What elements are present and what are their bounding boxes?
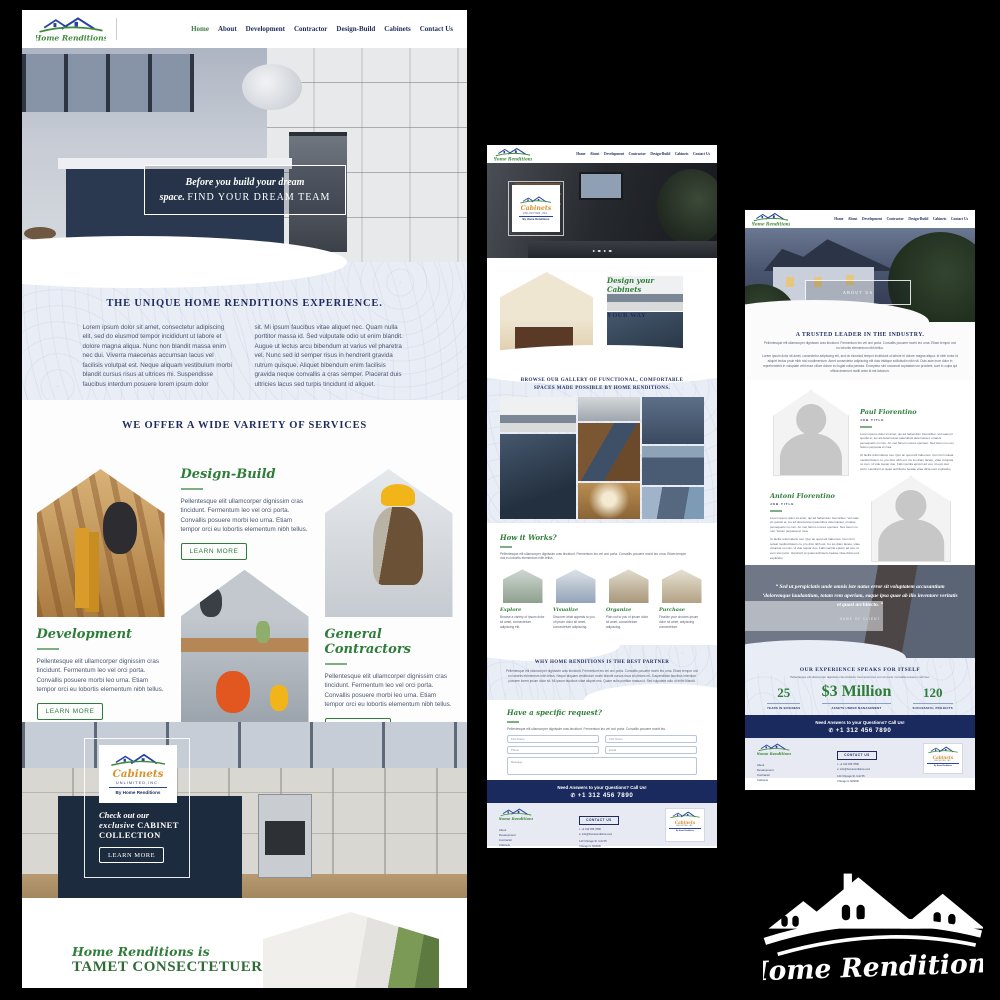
phone-icon: ✆: [829, 728, 834, 734]
nav-item-contractor[interactable]: Contractor: [629, 152, 646, 156]
paul-avatar-placeholder: [773, 390, 849, 476]
gallery-photo[interactable]: [500, 397, 576, 432]
learn-more-button[interactable]: LEARN MORE: [99, 847, 164, 863]
gallery-title: BROWSE OUR GALLERY OF FUNCTIONAL, COMFOR…: [487, 365, 717, 392]
site-footer: About Development Contractor Cabinets CO…: [487, 803, 717, 846]
team-member-paragraph: Ut facilis reformidans mei. Quo an quod …: [860, 453, 956, 472]
cabinets-roof-icon: [519, 196, 552, 204]
nav-item-home[interactable]: Home: [191, 25, 209, 33]
testimonial-quote: “ Sed ut perspiciatis unde omnis iste na…: [762, 583, 958, 610]
cabinets-roof-icon: [927, 746, 959, 754]
site-header: Home About Development Contractor Design…: [487, 145, 717, 163]
cabinets-roof-icon: [109, 753, 167, 767]
hero-line2-italic: space.: [160, 192, 185, 203]
how-intro: Pellentesque elit ullamcorper dignissim …: [500, 552, 690, 562]
team-member-job-title: JOB TITLE: [860, 418, 956, 422]
general-contractors-photo: [325, 469, 453, 617]
cabinets-unlimited-logo: Cabinets UNLIMITED,INC. By Home Renditio…: [109, 753, 167, 795]
footer-link-cabinets[interactable]: Cabinets: [499, 843, 533, 848]
stat-value: $3 Million: [822, 683, 892, 701]
hero-caption: Before you build your dream space. FIND …: [144, 165, 346, 215]
stat-years: 25 YEARS IN BUSINESS: [767, 685, 800, 710]
email-input[interactable]: [605, 746, 697, 754]
site-header: Home About Development Contractor Design…: [22, 10, 467, 48]
service-text: Pellentesque elit ullamcorper dignissim …: [181, 497, 309, 535]
visualize-photo: [556, 569, 596, 603]
message-input[interactable]: [507, 757, 697, 775]
stat-assets: $3 Million ASSETS UNDER MANAGEMENT: [822, 683, 892, 710]
dark-kitchen-hero-photo: Cabinets UNLIMITED,INC. By Home Renditio…: [487, 163, 717, 258]
cabinets-unlimited-text: UNLIMITED,INC.: [519, 213, 552, 216]
design-build-photo: [181, 570, 309, 726]
service-name: Design-Build: [181, 467, 309, 482]
nav-item-design-build[interactable]: Design-Build: [908, 217, 928, 221]
call-us-text: Need Answers to your Questions? Call Us!: [745, 720, 975, 725]
banner-line2-caps: CABINET: [137, 820, 179, 830]
banner-line3: COLLECTION: [99, 830, 219, 840]
gallery-photo[interactable]: [642, 397, 704, 444]
purchase-photo: [662, 569, 702, 603]
team-member-paragraph: Lorem ipsum dolor sit amet, qui ad haben…: [770, 516, 862, 535]
carousel-dot[interactable]: [593, 250, 595, 252]
cabinets-script-text: Cabinets: [519, 205, 552, 212]
home-renditions-watermark-logo: [763, 858, 983, 990]
why-text: Pellentesque elit ullamcorper dignissim …: [504, 669, 700, 684]
team-member-paragraph: Ut facilis reformidans mei. Quo an quod …: [770, 537, 862, 560]
service-name: Development: [37, 627, 165, 642]
testimonial-client-name: NAME OF CLIENT: [745, 617, 975, 621]
cabinets-logo-card: Cabinets UNLIMITED,INC. By Home Renditio…: [99, 745, 177, 803]
services-title: WE OFFER A WIDE VARIETY OF SERVICES: [22, 400, 467, 431]
step-text: Plan out to you of ipsum dolor sit amet,…: [606, 615, 651, 630]
homepage-mockup: Home About Development Contractor Design…: [22, 10, 467, 988]
antoni-avatar-placeholder: [871, 476, 951, 562]
nav-item-home[interactable]: Home: [576, 152, 585, 156]
footer-address-1: 123 Chicago St. Unit 55: [837, 775, 877, 778]
call-us-bar: Need Answers to your Questions? Call Us!…: [487, 780, 717, 803]
gallery-photo[interactable]: [642, 446, 704, 485]
organize-photo: [609, 569, 649, 603]
trusted-paragraph-1: Pellentesque elit ullamcorper dignissim …: [762, 341, 958, 351]
team-section: Paul Fiorentino JOB TITLE Lorem ipsum do…: [745, 380, 975, 565]
hero-line2-caps: FIND YOUR DREAM TEAM: [187, 192, 330, 203]
carousel-dots: [593, 250, 612, 252]
explore-photo: [503, 569, 543, 603]
stat-label: YEARS IN BUSINESS: [767, 703, 800, 710]
cabinets-script-text: Cabinets: [109, 769, 167, 781]
bottom-teaser-section: Home Renditions is TAMET CONSECTETUER: [22, 898, 467, 988]
step-name: Visualize: [553, 607, 598, 613]
why-best-partner-section: WHY HOME RENDITIONS IS THE BEST PARTNER …: [487, 645, 717, 700]
nav-item-development[interactable]: Development: [862, 217, 882, 221]
home-renditions-logo[interactable]: [752, 212, 790, 227]
nav-item-contractor[interactable]: Contractor: [294, 25, 327, 33]
nav-item-design-build[interactable]: Design-Build: [336, 25, 375, 33]
team-member-paragraph: Lorem ipsum dolor sit amet, qui ad haben…: [860, 432, 956, 451]
gallery-photo[interactable]: [578, 423, 640, 481]
hero-line1: Before you build your dream: [186, 177, 305, 188]
banner-line2-italic: exclusive: [99, 820, 135, 830]
design-title-script: Design your Cabinets: [607, 276, 683, 311]
experience-title: THE UNIQUE HOME RENDITIONS EXPERIENCE.: [22, 262, 467, 309]
teaser-line1: Home Renditions is: [72, 944, 263, 959]
how-it-works-section: How it Works? Pellentesque elit ullamcor…: [487, 523, 717, 645]
how-title: How it Works?: [500, 533, 704, 542]
carousel-dot[interactable]: [598, 250, 600, 252]
footer-address-1: 123 Chicago St. Unit 55: [579, 840, 619, 843]
cabinets-unlimited-text: UNLIMITED,INC.: [109, 781, 167, 785]
nav-item-about[interactable]: About: [590, 152, 600, 156]
nav-item-about[interactable]: About: [218, 25, 237, 33]
banner-line1: Check out our: [99, 810, 219, 820]
cabinets-logo-card: Cabinets UNLIMITED,INC. By Home Renditio…: [665, 808, 705, 842]
home-renditions-logo[interactable]: [499, 808, 533, 821]
nav-item-cabinets[interactable]: Cabinets: [384, 25, 410, 33]
team-member-job-title: JOB TITLE: [770, 502, 862, 506]
cabinets-logo-card: Cabinets UNLIMITED,INC. By Home Renditio…: [923, 743, 963, 774]
footer-address-2: Chicago IL 600000: [579, 845, 619, 848]
step-visualize: Visualize Discover what appeals to you o…: [553, 569, 598, 630]
gallery-photo[interactable]: [500, 434, 576, 519]
hero-kitchen-photo: Before you build your dream space. FIND …: [22, 48, 467, 262]
cabinet-banner-section: Cabinets UNLIMITED,INC. By Home Renditio…: [22, 722, 467, 898]
footer-email[interactable]: e: info@homerenditions.com: [579, 833, 619, 836]
step-text: Finalize your choices ipsum dolor sit am…: [659, 615, 704, 630]
service-design-build: Design-Build Pellentesque elit ullamcorp…: [181, 441, 309, 735]
cabinets-logo-card: Cabinets UNLIMITED,INC. By Home Renditio…: [512, 185, 560, 232]
footer-phone[interactable]: t: +1 312 456 7890: [579, 828, 619, 831]
step-organize: Organize Plan out to you of ipsum dolor …: [606, 569, 651, 630]
cabinets-by-text: By Home Renditions: [927, 763, 959, 767]
nav-item-home[interactable]: Home: [834, 217, 843, 221]
footer-link-cabinets[interactable]: Cabinets: [757, 778, 791, 783]
header-divider: [116, 18, 117, 40]
learn-more-button[interactable]: LEARN MORE: [37, 703, 104, 720]
site-footer: About Development Contractor Cabinets CO…: [745, 738, 975, 778]
first-name-input-2[interactable]: [605, 735, 697, 743]
stat-label: SUCCESSFUL PROJECTS: [913, 703, 953, 710]
trusted-paragraph-2: Lorem ipsum dolor sit amet, consectetur …: [762, 354, 958, 374]
service-general-contractors: General Contractors Pellentesque elit ul…: [325, 469, 453, 735]
nav-item-contact-us[interactable]: Contact Us: [951, 217, 968, 221]
phone-input[interactable]: [507, 746, 599, 754]
nav-item-development[interactable]: Development: [246, 25, 285, 33]
stats-section: OUR EXPERIENCE SPEAKS FOR ITSELF Pellent…: [745, 658, 975, 715]
nav-item-contact-us[interactable]: Contact Us: [693, 152, 710, 156]
learn-more-button[interactable]: LEARN MORE: [181, 543, 248, 560]
contact-us-button[interactable]: CONTACT US: [837, 751, 877, 760]
development-photo: [37, 469, 165, 617]
cabinets-by-text: By Home Renditions: [669, 828, 701, 832]
stat-projects: 120 SUCCESSFUL PROJECTS: [913, 685, 953, 710]
cabinet-banner-copy: Check out our exclusive CABINET COLLECTI…: [99, 810, 219, 863]
phone-number[interactable]: ✆+1 312 456 7890: [487, 792, 717, 799]
stat-value: 120: [913, 685, 953, 701]
nav-item-cabinets[interactable]: Cabinets: [933, 217, 947, 221]
home-renditions-logo[interactable]: [757, 743, 791, 756]
phone-icon: ✆: [571, 793, 576, 799]
teaser-line2: TAMET CONSECTETUER: [72, 959, 263, 976]
request-text: Pellentesque elit ullamcorper dignissim …: [507, 727, 697, 732]
cabinets-unlimited-logo: Cabinets UNLIMITED,INC. By Home Renditio…: [669, 811, 701, 832]
experience-section: THE UNIQUE HOME RENDITIONS EXPERIENCE. L…: [22, 262, 467, 400]
team-member-name: Paul Fiorentino: [860, 408, 956, 416]
cabinets-page-mockup: Home About Development Contractor Design…: [487, 145, 717, 848]
pantry-photo: [263, 912, 439, 988]
first-name-input[interactable]: [507, 735, 599, 743]
nav-item-cabinets[interactable]: Cabinets: [675, 152, 689, 156]
gallery-mosaic: [500, 397, 704, 519]
service-text: Pellentesque elit ullamcorper dignissim …: [37, 657, 165, 695]
step-purchase: Purchase Finalize your choices ipsum dol…: [659, 569, 704, 630]
stats-subtitle: Pellentesque elit ullamcorper dignissim …: [765, 675, 955, 679]
call-us-bar: Need Answers to your Questions? Call Us!…: [745, 715, 975, 738]
nav-item-design-build[interactable]: Design-Build: [650, 152, 670, 156]
experience-col2: sit. Mi ipsum faucibus vitae aliquet nec…: [255, 323, 407, 389]
main-nav: Home About Development Contractor Design…: [191, 25, 453, 33]
stats-title: OUR EXPERIENCE SPEAKS FOR ITSELF: [745, 658, 975, 673]
gallery-photo[interactable]: [578, 483, 640, 519]
service-text: Pellentesque elit ullamcorper dignissim …: [325, 672, 453, 710]
nav-item-about[interactable]: About: [848, 217, 858, 221]
stat-value: 25: [767, 685, 800, 701]
carousel-dot[interactable]: [604, 250, 606, 252]
step-explore: Explore Browse a variety of ipsum dolor …: [500, 569, 545, 630]
nav-item-development[interactable]: Development: [604, 152, 624, 156]
gallery-photo[interactable]: [578, 397, 640, 421]
cabinets-by-text: By Home Renditions: [109, 787, 167, 795]
footer-email[interactable]: e: info@homerenditions.com: [837, 768, 877, 771]
step-name: Organize: [606, 607, 651, 613]
trusted-title: A TRUSTED LEADER IN THE INDUSTRY.: [745, 322, 975, 338]
nav-item-contact-us[interactable]: Contact Us: [420, 25, 453, 33]
experience-col1: Lorem ipsum dolor sit amet, consectetur …: [83, 323, 235, 389]
service-name: General Contractors: [325, 627, 453, 657]
cabinets-unlimited-logo: Cabinets UNLIMITED,INC. By Home Renditio…: [519, 196, 552, 222]
step-name: Explore: [500, 607, 545, 613]
kitchen-photo: [500, 272, 593, 356]
trusted-leader-section: A TRUSTED LEADER IN THE INDUSTRY. Pellen…: [745, 322, 975, 380]
team-member-name: Antoni Fiorentino: [770, 492, 862, 500]
main-nav: Home About Development Contractor Design…: [834, 217, 968, 221]
about-page-mockup: Home About Development Contractor Design…: [745, 210, 975, 790]
why-title: WHY HOME RENDITIONS IS THE BEST PARTNER: [487, 645, 717, 665]
stat-label: ASSETS UNDER MANAGEMENT: [822, 703, 892, 710]
footer-phone[interactable]: t: +1 312 456 7890: [837, 763, 877, 766]
carousel-dot[interactable]: [609, 250, 611, 252]
team-member-antoni: Antoni Fiorentino JOB TITLE Lorem ipsum …: [770, 492, 862, 563]
gallery-photo[interactable]: [642, 487, 704, 519]
team-member-paul: Paul Fiorentino JOB TITLE Lorem ipsum do…: [860, 408, 956, 475]
nav-item-contractor[interactable]: Contractor: [887, 217, 904, 221]
gallery-section: BROWSE OUR GALLERY OF FUNCTIONAL, COMFOR…: [487, 365, 717, 523]
main-nav: Home About Development Contractor Design…: [576, 152, 710, 156]
phone-number[interactable]: ✆+1 312 456 7890: [745, 727, 975, 734]
home-renditions-logo[interactable]: [494, 147, 532, 162]
contact-us-button[interactable]: CONTACT US: [579, 816, 619, 825]
site-header: Home About Development Contractor Design…: [745, 210, 975, 228]
cabinets-unlimited-text: UNLIMITED,INC.: [669, 826, 701, 828]
services-section: WE OFFER A WIDE VARIETY OF SERVICES Deve…: [22, 400, 467, 722]
cabinets-by-text: By Home Renditions: [519, 216, 552, 221]
call-us-text: Need Answers to your Questions? Call Us!: [487, 785, 717, 790]
step-name: Purchase: [659, 607, 704, 613]
cabinets-unlimited-text: UNLIMITED,INC.: [927, 761, 959, 763]
cabinets-roof-icon: [669, 811, 701, 819]
footer-address-2: Chicago IL 600000: [837, 780, 877, 783]
step-text: Discover what appeals to you of ipsum do…: [553, 615, 598, 630]
service-development: Development Pellentesque elit ullamcorpe…: [37, 469, 165, 735]
home-renditions-logo[interactable]: [36, 16, 106, 43]
cabinets-unlimited-logo: Cabinets UNLIMITED,INC. By Home Renditio…: [927, 746, 959, 767]
